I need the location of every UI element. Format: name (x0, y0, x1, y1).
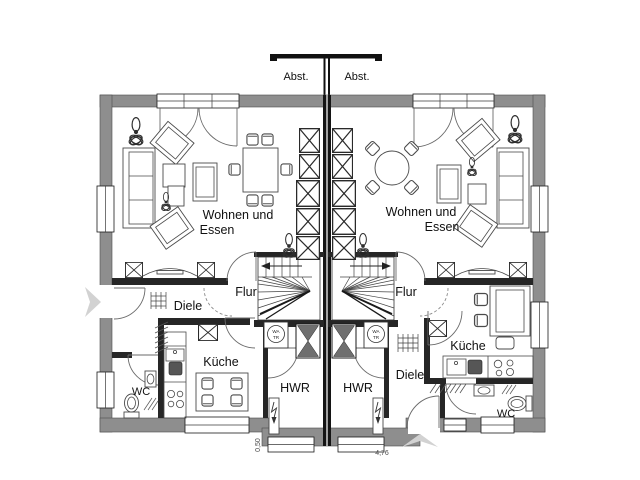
exterior-wall-right (533, 95, 545, 432)
doormat-right (398, 334, 418, 352)
staircase-right (332, 257, 394, 320)
room-label-kueche-right: Küche (450, 339, 485, 353)
stove-right (494, 360, 513, 376)
coffee-table-left (193, 163, 217, 201)
room-label-living-left-1: Wohnen und (203, 208, 274, 222)
shaft-kitchen-right (428, 320, 446, 336)
room-label-wc-right: WC (497, 408, 515, 420)
kitchen-counter-right (443, 356, 533, 378)
window-hwr-left (268, 437, 314, 452)
utility-panel-left (269, 398, 279, 434)
room-label-diele-right: Diele (396, 368, 425, 382)
opening-diele-flur-left (204, 288, 232, 316)
stair-cut-line (260, 291, 310, 314)
terrace-door-right (413, 94, 494, 108)
entrance-opening-right (408, 416, 440, 434)
washer-label: TR (273, 335, 280, 340)
hwr-door-left (268, 348, 298, 378)
room-label-wc-left: WC (132, 386, 150, 398)
room-label-hwr-left: HWR (280, 381, 310, 395)
annex-divider (328, 58, 330, 95)
radiator-diele-right (430, 384, 466, 393)
dining-table-left (229, 134, 292, 206)
annex-post-left (270, 54, 277, 61)
shelf-unit-left (297, 129, 320, 260)
room-label-living-right-2: Essen (425, 220, 460, 234)
abst-label-right: Abst. (344, 71, 369, 83)
kitchen-table-left (196, 373, 248, 411)
armchair (150, 121, 194, 164)
door-living-left (227, 252, 256, 281)
armchair (150, 207, 194, 249)
hwr-door-right (354, 348, 384, 378)
terrace-door-left (157, 94, 239, 108)
wc-radiator-left (144, 398, 158, 410)
window-living-right (531, 186, 548, 232)
entrance-step-right (444, 419, 466, 431)
washer-dryer-left: WA TR (264, 322, 288, 348)
wc-door-right (446, 384, 476, 414)
kitchen-sink-left (166, 349, 184, 375)
room-label-flur-left: Flur (235, 285, 257, 299)
floor-plan-drawing: Abst. Abst. (0, 0, 640, 480)
room-label-living-right-1: Wohnen und (386, 205, 457, 219)
door-living-right (396, 252, 425, 281)
utility-panel-right (373, 398, 383, 434)
stair-direction-arrow-left (261, 262, 302, 270)
stair-direction-arrow-right (350, 262, 391, 270)
washer-label: TR (373, 335, 380, 340)
annex-divider (324, 58, 326, 95)
dimension-label-side: 0,50 (255, 438, 262, 452)
room-label-living-left-2: Essen (200, 223, 235, 237)
annex-post-right (375, 54, 382, 61)
chimney-right (332, 324, 356, 358)
coffee-table-right (437, 165, 486, 204)
stair-cut-line (342, 291, 392, 314)
annex-wall (271, 54, 382, 59)
stove-left (167, 390, 183, 407)
doormat-left (151, 292, 166, 309)
staircase-left (258, 257, 320, 320)
plant-icon (128, 118, 144, 147)
annex-structure: Abst. Abst. (270, 54, 382, 95)
wc-radiator-right (502, 385, 516, 394)
washbasin-right (474, 385, 494, 396)
round-dining-table-right (365, 141, 420, 196)
shaft-kitchen-left (199, 324, 218, 340)
washer-label: WA (372, 329, 380, 334)
washbasin-left (145, 371, 156, 387)
sideboard-left (125, 262, 214, 277)
stair-cut-line (266, 291, 310, 319)
room-label-flur-right: Flur (395, 285, 417, 299)
opening-diele-flur-right (420, 288, 448, 316)
room-label-kueche-left: Küche (203, 355, 238, 369)
kitchen-counter-left (164, 332, 186, 418)
sofa-right (497, 148, 529, 228)
abst-label-left: Abst. (283, 71, 308, 83)
washer-label: WA (272, 329, 280, 334)
dimension-label-width: 4,76 (375, 450, 389, 457)
window-wc-left (97, 372, 114, 408)
entrance-door-left (114, 288, 145, 319)
sideboard-right (437, 262, 526, 277)
washer-dryer-right: WA TR (364, 322, 388, 348)
armchair (454, 205, 498, 247)
room-label-diele-left: Diele (174, 299, 203, 313)
floor-plan-canvas: Abst. Abst. (0, 0, 640, 480)
window-kitchen-left-bottom (185, 417, 249, 433)
kitchen-sink-right (447, 359, 482, 375)
chimney-left (296, 324, 320, 358)
window-living-left (97, 186, 114, 232)
shelf-unit-right (333, 129, 356, 260)
room-label-hwr-right: HWR (343, 381, 373, 395)
side-table-left (163, 164, 185, 206)
window-kitchen-right (531, 302, 548, 348)
sofa-left (123, 148, 155, 228)
stair-cut-line (342, 291, 386, 319)
interior-walls (112, 252, 533, 418)
plant-icon (507, 116, 523, 145)
